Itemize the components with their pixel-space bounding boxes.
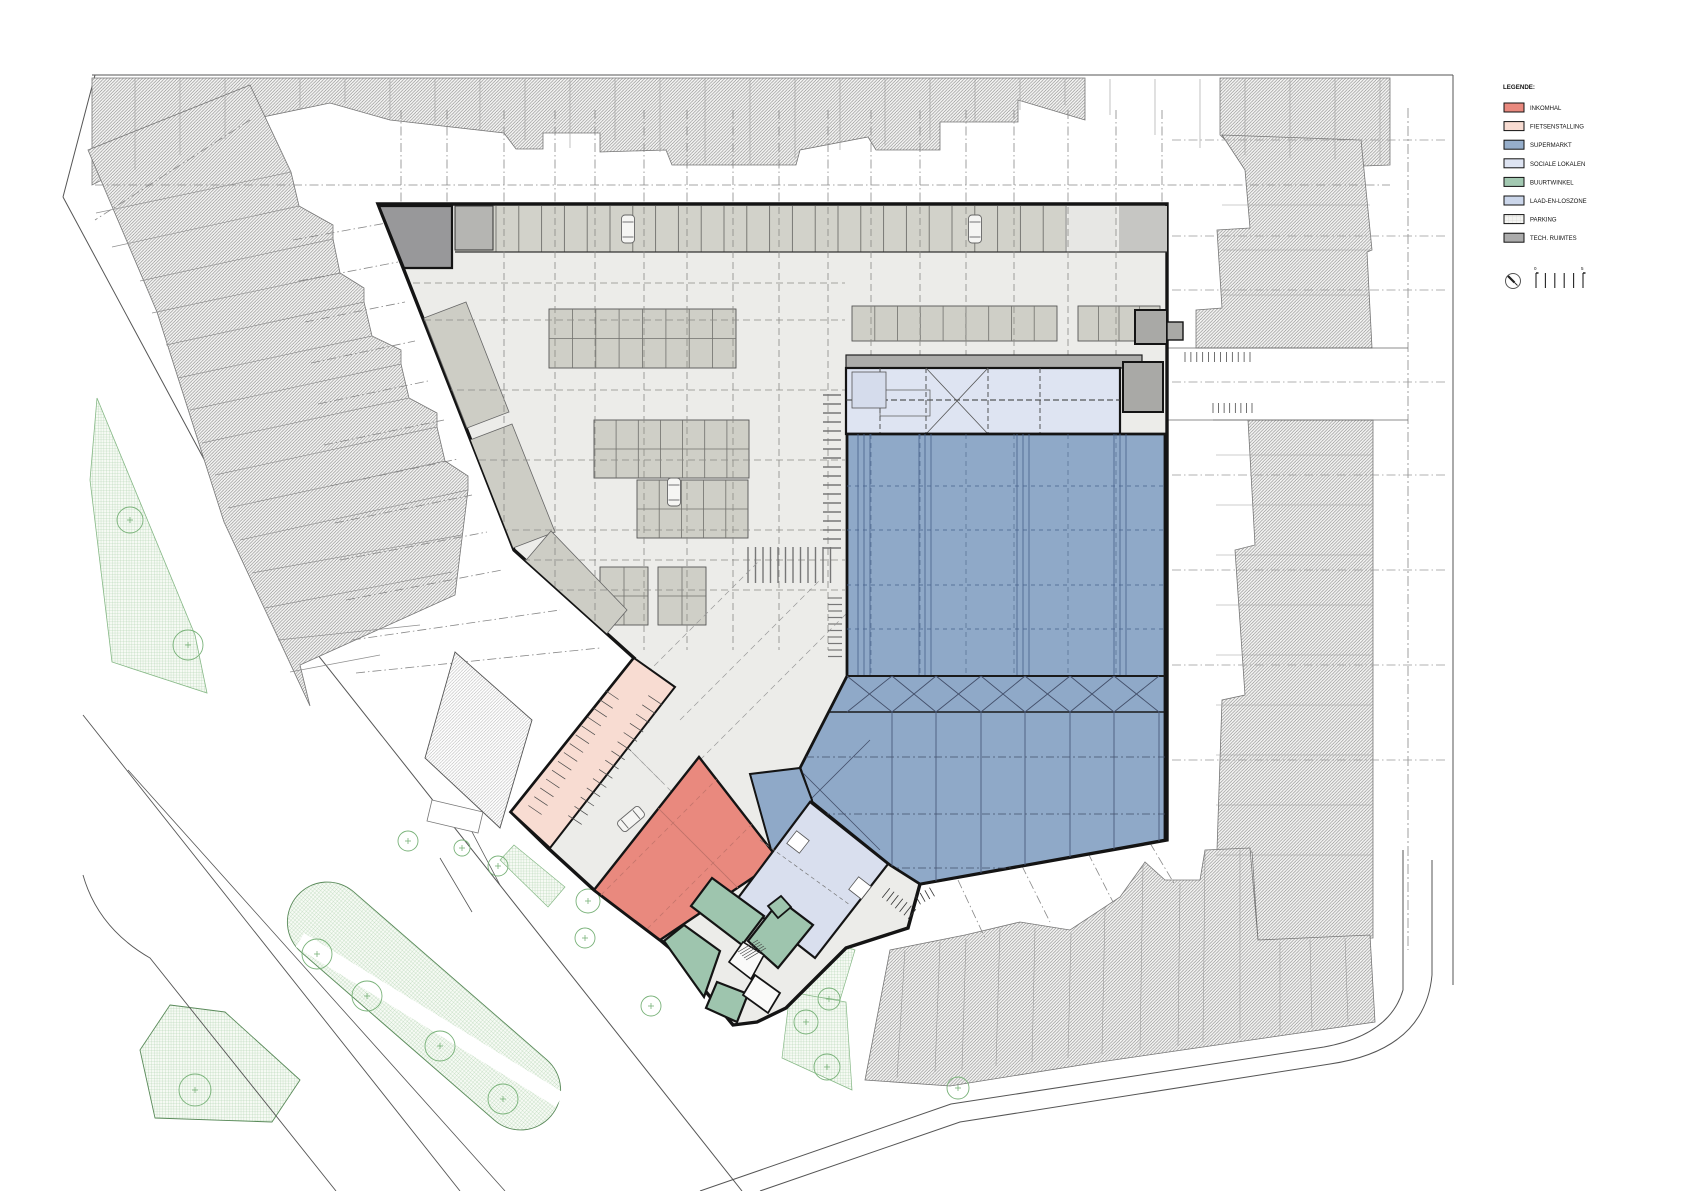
svg-text:SUPERMARKT: SUPERMARKT	[1530, 143, 1572, 149]
svg-text:TECH. RUIMTES: TECH. RUIMTES	[1530, 236, 1577, 242]
svg-text:BUURTWINKEL: BUURTWINKEL	[1530, 180, 1574, 186]
svg-text:LEGENDE:: LEGENDE:	[1503, 84, 1535, 91]
svg-text:LAAD-EN-LOSZONE: LAAD-EN-LOSZONE	[1530, 199, 1587, 205]
svg-text:INKOMHAL: INKOMHAL	[1530, 106, 1562, 112]
svg-text:SOCIALE LOKALEN: SOCIALE LOKALEN	[1530, 162, 1585, 168]
svg-text:PARKING: PARKING	[1530, 218, 1557, 224]
svg-text:FIETSENSTALLING: FIETSENSTALLING	[1530, 125, 1584, 131]
